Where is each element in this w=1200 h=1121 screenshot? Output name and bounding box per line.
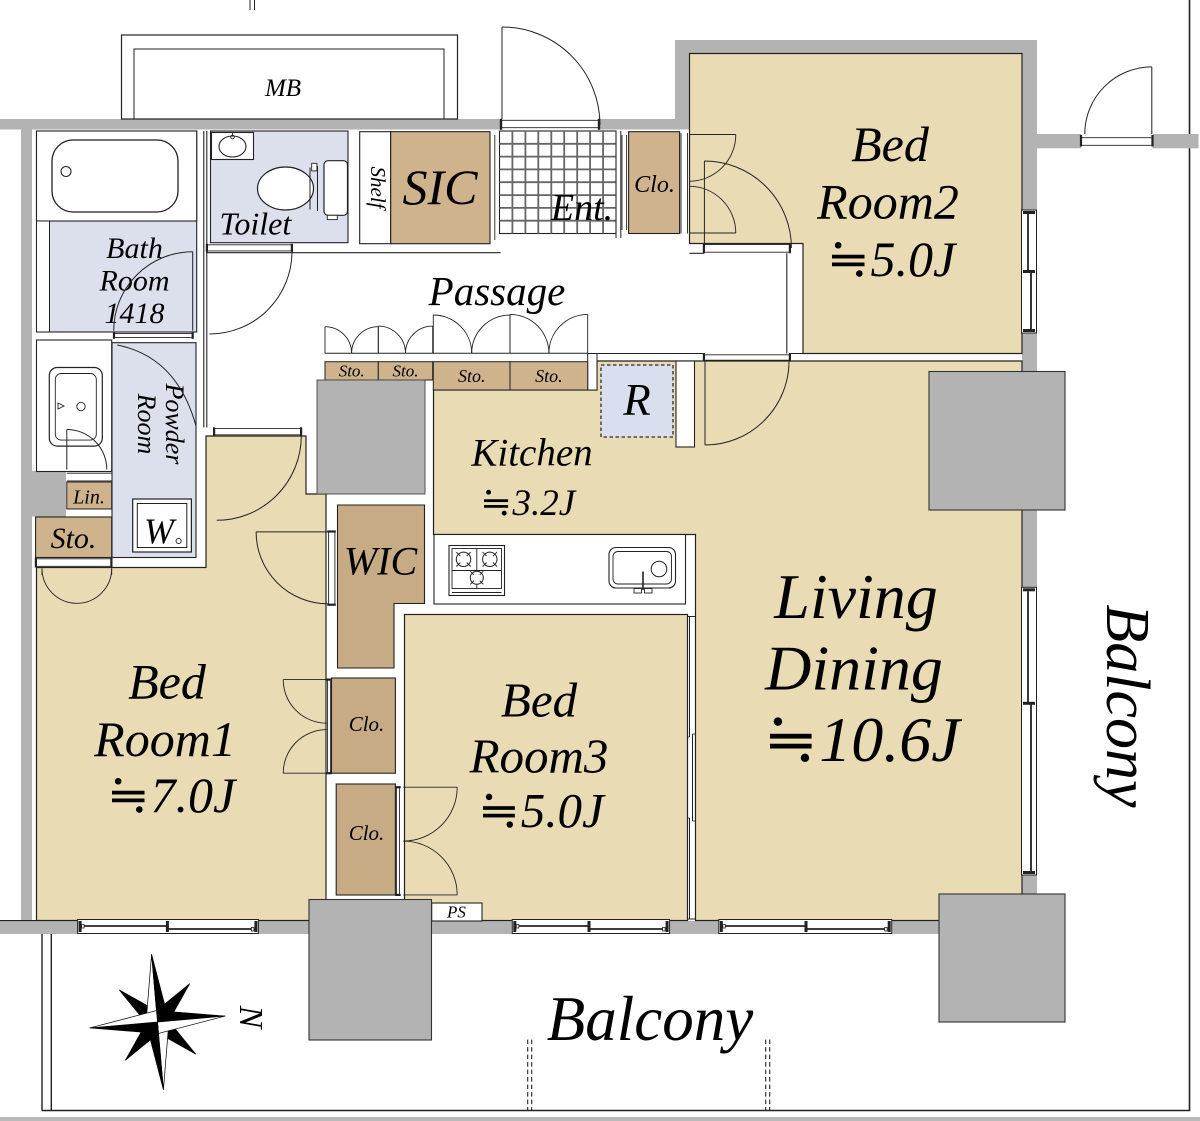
svg-text:Ent.: Ent. [550, 187, 613, 229]
svg-text:Clo.: Clo. [349, 821, 385, 845]
svg-text:Bed: Bed [128, 654, 207, 710]
svg-text:Room2: Room2 [816, 174, 959, 230]
svg-text:Bed: Bed [501, 673, 578, 728]
svg-text:Dining: Dining [764, 633, 943, 704]
svg-text:MB: MB [264, 75, 301, 102]
svg-text:N: N [232, 1005, 269, 1031]
svg-text:Room: Room [99, 265, 170, 298]
svg-text:Passage: Passage [428, 268, 566, 314]
svg-text:Sto.: Sto. [458, 366, 486, 386]
svg-text:Room: Room [132, 393, 161, 455]
svg-text:Clo.: Clo. [349, 712, 385, 736]
svg-text:Balcony: Balcony [1093, 604, 1161, 808]
svg-text:R: R [622, 375, 651, 425]
svg-text:W: W [144, 511, 177, 551]
svg-text:Sto.: Sto. [339, 362, 365, 381]
svg-text:Powder: Powder [160, 383, 189, 466]
svg-text:SIC: SIC [403, 159, 479, 215]
svg-text:PS: PS [446, 903, 466, 922]
svg-text:7.0J: 7.0J [151, 767, 239, 823]
svg-text:Sto.: Sto. [393, 362, 419, 381]
svg-text:Room3: Room3 [469, 729, 609, 784]
svg-text:Toilet: Toilet [220, 206, 293, 242]
svg-text:5.0J: 5.0J [871, 231, 959, 287]
svg-text:Bath: Bath [106, 232, 163, 265]
svg-text:Sto.: Sto. [535, 366, 563, 386]
svg-text:5.0J: 5.0J [521, 783, 606, 838]
svg-text:Shelf: Shelf [366, 167, 390, 212]
svg-text:Room1: Room1 [93, 711, 236, 767]
svg-text:10.6J: 10.6J [819, 704, 962, 775]
svg-text:Lin.: Lin. [72, 487, 105, 509]
svg-text:WIC: WIC [344, 539, 419, 584]
svg-text:Sto.: Sto. [51, 522, 97, 555]
svg-text:Balcony: Balcony [547, 984, 753, 1054]
svg-text:Clo.: Clo. [634, 172, 675, 198]
svg-text:Kitchen: Kitchen [470, 432, 592, 475]
svg-text:Living: Living [773, 561, 938, 632]
svg-text:Bed: Bed [851, 116, 930, 172]
svg-text:3.2J: 3.2J [511, 483, 576, 524]
